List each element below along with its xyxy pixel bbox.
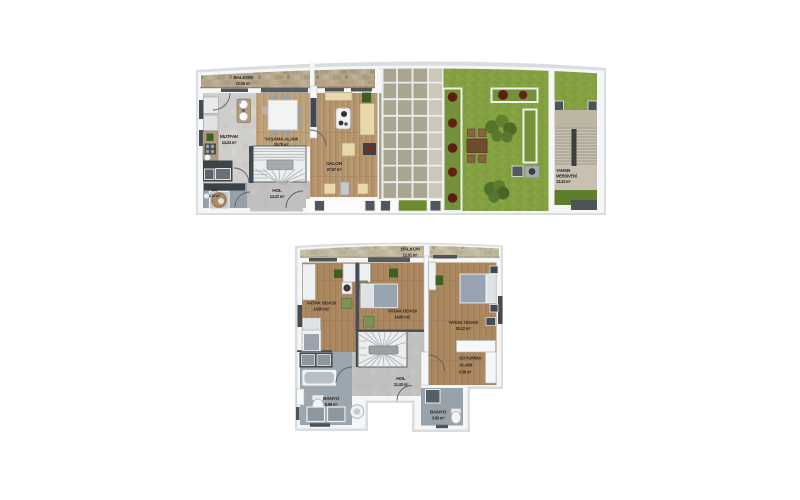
svg-text:WC: WC <box>211 188 218 193</box>
svg-text:YATAK ODASI: YATAK ODASI <box>387 309 417 315</box>
svg-text:MERDİVENİ: MERDİVENİ <box>556 174 577 179</box>
svg-text:14.24 m²: 14.24 m² <box>222 140 238 145</box>
svg-text:2.16 m²: 2.16 m² <box>209 194 221 198</box>
svg-text:12.05 m²: 12.05 m² <box>236 81 252 86</box>
svg-text:11.43 m²: 11.43 m² <box>394 382 409 387</box>
svg-text:YANGIN: YANGIN <box>556 168 570 173</box>
svg-text:27.87 m²: 27.87 m² <box>327 167 343 172</box>
svg-text:14.22 m²: 14.22 m² <box>270 194 286 199</box>
svg-text:12.01 m²: 12.01 m² <box>403 253 419 258</box>
svg-text:BANYO: BANYO <box>430 410 447 416</box>
svg-text:5.38 m²: 5.38 m² <box>459 370 472 375</box>
svg-text:BALKON: BALKON <box>400 247 420 253</box>
svg-text:5.88 m²: 5.88 m² <box>325 402 339 407</box>
svg-text:ALANI: ALANI <box>459 363 473 369</box>
svg-text:3.60 m²: 3.60 m² <box>432 416 446 421</box>
svg-text:SOYUNMA: SOYUNMA <box>459 356 482 362</box>
svg-text:20.12 m²: 20.12 m² <box>456 326 472 331</box>
svg-text:13.43 m²: 13.43 m² <box>556 179 571 184</box>
svg-text:HOL: HOL <box>396 376 406 382</box>
svg-text:YATAK ODASI: YATAK ODASI <box>306 301 336 307</box>
svg-text:15.75 m²: 15.75 m² <box>274 142 290 147</box>
svg-text:14.80 m2: 14.80 m2 <box>394 315 411 320</box>
svg-text:14.80 m2: 14.80 m2 <box>313 307 330 312</box>
